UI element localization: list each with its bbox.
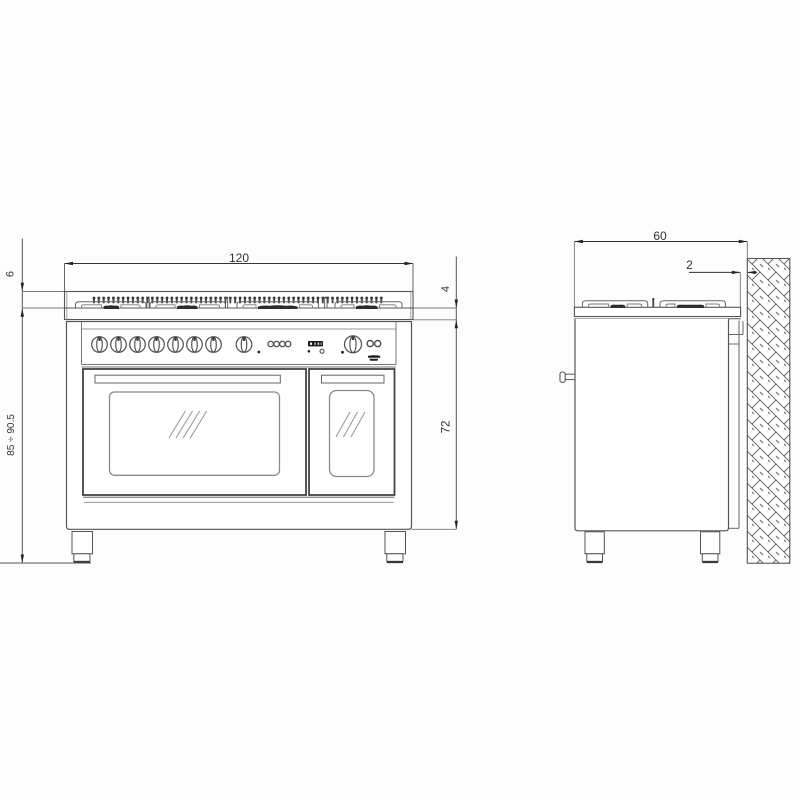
svg-text:120: 120 [229, 251, 249, 265]
svg-text:60: 60 [653, 229, 667, 243]
svg-text:6: 6 [5, 271, 17, 277]
svg-text:72: 72 [441, 421, 453, 434]
svg-text:2: 2 [686, 258, 693, 272]
svg-text:85 ÷ 90.5: 85 ÷ 90.5 [6, 414, 17, 456]
svg-text:4: 4 [440, 286, 452, 292]
